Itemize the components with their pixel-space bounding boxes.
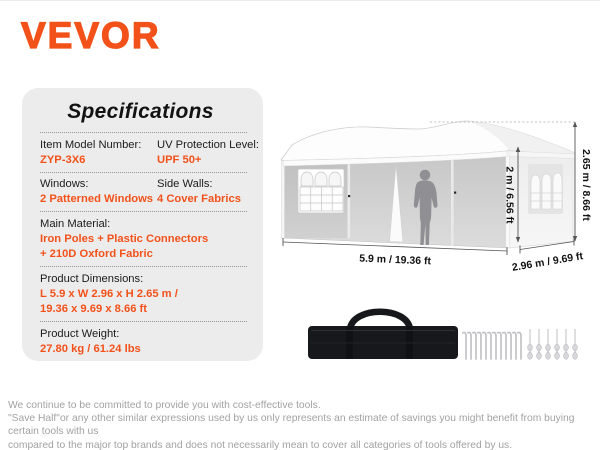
spec-cell-uv: UV Protection Level: UPF 50+ xyxy=(157,138,259,168)
spec-value: UPF 50+ xyxy=(157,153,259,168)
footer-disclaimer: We continue to be committed to provide y… xyxy=(8,399,598,450)
spec-label: Product Dimensions: xyxy=(40,272,251,286)
dim-label-length: 5.9 m / 19.36 ft xyxy=(359,253,432,268)
spec-row-dimensions: Product Dimensions: L 5.9 x W 2.96 x H 2… xyxy=(40,267,251,321)
wall-seam xyxy=(451,158,454,246)
spec-value: Iron Poles + Plastic Connectors xyxy=(40,232,251,247)
spec-value: 4 Cover Fabrics xyxy=(157,192,251,207)
tent-diagram: 2.65 m / 8.66 ft 2 m / 6.56 ft 5.9 m / 1… xyxy=(270,59,600,389)
spec-value: 19.36 x 9.69 x 8.66 ft xyxy=(40,302,251,317)
wall-seam xyxy=(348,162,351,239)
product-spec-sheet: VEVOR Specifications Item Model Number: … xyxy=(0,0,600,450)
footer-line: "Save Half"or any other similar expressi… xyxy=(8,412,598,438)
dim-label-total-height: 2.65 m / 8.66 ft xyxy=(580,149,592,221)
spec-value: + 210D Oxford Fabric xyxy=(40,247,251,262)
specifications-panel: Specifications Item Model Number: ZYP-3X… xyxy=(22,88,263,361)
vevor-logo: VEVOR xyxy=(21,15,161,57)
spec-label: Side Walls: xyxy=(157,177,251,191)
tent-stakes xyxy=(463,333,521,359)
spec-cell-sidewalls: Side Walls: 4 Cover Fabrics xyxy=(157,177,251,207)
spec-value: 27.80 kg / 61.24 lbs xyxy=(40,342,251,357)
spec-row-material: Main Material: Iron Poles + Plastic Conn… xyxy=(40,212,251,266)
spec-label: Product Weight: xyxy=(40,327,251,341)
carry-bag xyxy=(308,312,458,359)
dim-label-wall-height: 2 m / 6.56 ft xyxy=(504,166,516,224)
spec-label: UV Protection Level: xyxy=(157,138,259,152)
side-window xyxy=(528,164,563,214)
footer-line: We continue to be committed to provide y… xyxy=(8,399,598,412)
rope-tensioners xyxy=(528,329,578,359)
dim-label-depth: 2.96 m / 9.69 ft xyxy=(511,250,584,274)
spec-value: 2 Patterned Windows xyxy=(40,192,157,207)
spec-value: L 5.9 x W 2.96 x H 2.65 m / xyxy=(40,287,251,302)
spec-row-windows-walls: Windows: 2 Patterned Windows Side Walls:… xyxy=(40,173,251,212)
spec-label: Item Model Number: xyxy=(40,138,157,152)
spec-label: Main Material: xyxy=(40,217,251,231)
specifications-title: Specifications xyxy=(40,100,241,124)
spec-row-weight: Product Weight: 27.80 kg / 61.24 lbs xyxy=(40,322,251,361)
footer-line: compared to the major top brands and doe… xyxy=(8,439,598,450)
front-window xyxy=(298,169,344,213)
spec-value: ZYP-3X6 xyxy=(40,153,157,168)
spec-cell-model: Item Model Number: ZYP-3X6 xyxy=(40,138,157,168)
spec-row-model-uv: Item Model Number: ZYP-3X6 UV Protection… xyxy=(40,133,251,172)
spec-label: Windows: xyxy=(40,177,157,191)
corner-pole xyxy=(282,158,285,239)
spec-cell-windows: Windows: 2 Patterned Windows xyxy=(40,177,157,207)
